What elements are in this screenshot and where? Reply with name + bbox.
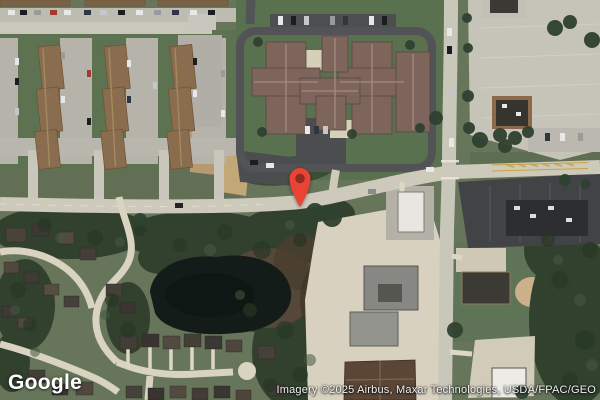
map-marker-icon[interactable]: [286, 165, 314, 207]
map-viewport[interactable]: Google Imagery ©2025 Airbus, Maxar Techn…: [0, 0, 600, 400]
imagery-attribution: Imagery ©2025 Airbus, Maxar Technologies…: [277, 384, 597, 396]
map-marker-hole: [295, 174, 305, 184]
google-logo[interactable]: Google: [8, 371, 82, 395]
